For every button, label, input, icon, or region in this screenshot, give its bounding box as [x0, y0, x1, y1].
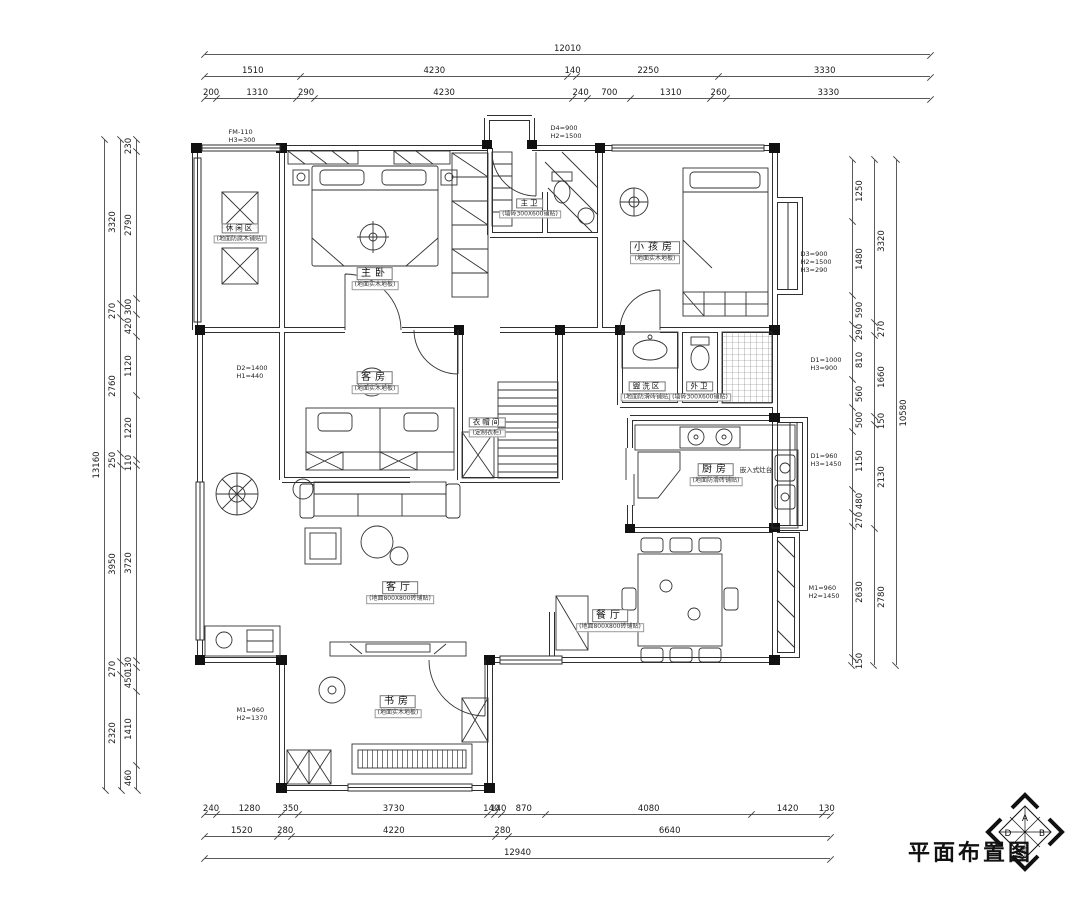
- dim-value: 3330: [814, 67, 836, 76]
- dim-segment: 1150: [852, 432, 867, 489]
- room-name: 盥洗区: [629, 381, 666, 391]
- dim-segment: 4220: [292, 822, 496, 837]
- dim-value: 3730: [383, 805, 405, 814]
- dim-value: 4220: [383, 827, 405, 836]
- room-label-kids: 小孩房 (地面实木地板): [630, 236, 680, 264]
- furniture-guest-room: [306, 330, 458, 470]
- dim-chain-bottom-mid: 152028042202806640: [205, 822, 830, 837]
- dim-value: 13160: [93, 451, 102, 478]
- dim-segment: 130: [823, 800, 830, 815]
- dim-value: 1310: [246, 89, 268, 98]
- room-label-cloak: 衣帽间 (定制衣柜): [469, 410, 506, 437]
- dim-value: 3720: [125, 553, 134, 575]
- dim-segment: 6640: [509, 822, 830, 837]
- dim-segment: 1220: [122, 396, 137, 460]
- dim-segment: 700: [588, 84, 631, 99]
- dim-value: 300: [125, 299, 134, 315]
- dim-value: 2760: [109, 375, 118, 397]
- room-label-leisure: 休闲区 (地面防腐木铺贴): [214, 216, 267, 243]
- room-name: 小孩房: [630, 241, 680, 254]
- dim-segment: 1410: [122, 692, 137, 766]
- dim-chain-right-total: 10580: [896, 160, 911, 665]
- room-name: 餐厅: [592, 609, 628, 622]
- dim-value: 3950: [109, 553, 118, 575]
- room-note: (地面800X800砖铺贴): [366, 595, 434, 604]
- dim-segment: 350: [282, 800, 300, 815]
- dim-value: 2320: [109, 722, 118, 744]
- dim-segment: 2790: [122, 152, 137, 299]
- room-name: 书房: [380, 695, 416, 708]
- dim-segment: 1120: [122, 337, 137, 396]
- dim-value: 12010: [554, 45, 581, 54]
- marker-letter-a: A: [1022, 814, 1029, 824]
- dim-value: 2630: [856, 581, 865, 603]
- dim-value: 480: [856, 493, 865, 509]
- dim-segment: 1250: [852, 160, 867, 222]
- dim-segment: 560: [852, 380, 867, 408]
- dim-segment: 150: [874, 417, 889, 424]
- dim-chain-top-mid: 1510423014022503330: [205, 62, 930, 77]
- room-note: (地面防腐木铺贴): [214, 235, 267, 244]
- room-note: (地面实木地板): [352, 281, 399, 290]
- dim-value: 1510: [242, 67, 264, 76]
- spec-guest-window: D2=1400 H1=440: [236, 364, 267, 380]
- dim-segment: 1420: [752, 800, 824, 815]
- dim-value: 280: [277, 827, 293, 836]
- dim-segment: 1280: [217, 800, 282, 815]
- dim-value: 280: [494, 827, 510, 836]
- spec-dining-door: M1=960 H2=1450: [808, 584, 839, 600]
- dim-value: 12940: [504, 849, 531, 858]
- dim-value: 1480: [856, 248, 865, 270]
- room-label-wash: 盥洗区 (地面防滑砖铺贴): [621, 374, 674, 401]
- dim-segment: 270: [852, 513, 867, 526]
- room-note: (地面防滑砖铺贴): [690, 477, 743, 486]
- floorplan-canvas: A B C D: [0, 0, 1080, 918]
- dim-value: 420: [125, 318, 134, 334]
- dim-segment: 3320: [106, 140, 121, 304]
- room-note: (墙砖300X600铺贴): [499, 210, 561, 219]
- dim-value: 810: [856, 351, 865, 367]
- dim-segment: 1660: [874, 336, 889, 417]
- dim-chain-bottom-inner: 2401280350373014014087040801420130: [205, 800, 830, 815]
- dim-segment: 4080: [546, 800, 752, 815]
- room-note: (地面实木地板): [630, 255, 680, 264]
- dim-segment: 3730: [299, 800, 487, 815]
- dim-segment: 150: [852, 658, 867, 665]
- spec-entry-door: D4=900 H2=1500: [550, 124, 581, 140]
- dim-value: 270: [109, 303, 118, 319]
- dim-segment: 1510: [205, 62, 301, 77]
- dim-segment: 870: [502, 800, 546, 815]
- dim-segment: 3330: [727, 84, 930, 99]
- dim-segment: 4230: [315, 84, 573, 99]
- furniture-living-room: [205, 473, 466, 656]
- dim-segment: 1520: [205, 822, 278, 837]
- dim-chain-top-inner: 2001310290423024070013102603330: [205, 84, 930, 99]
- dim-segment: 3320: [874, 160, 889, 323]
- dim-value: 1280: [239, 805, 261, 814]
- room-label-kitchen: 厨房 (地面防滑砖铺贴): [690, 458, 743, 486]
- dim-segment: 280: [278, 822, 292, 837]
- room-label-master-bath: 主卫 (墙砖300X600铺贴): [499, 191, 561, 218]
- dim-chain-right-mid: 3320270166015021302780: [874, 160, 889, 665]
- dim-segment: 10580: [896, 160, 911, 665]
- dim-value: 4230: [424, 67, 446, 76]
- room-label-guest: 客房 (地面实木地板): [352, 366, 399, 394]
- dim-segment: 12010: [205, 40, 930, 55]
- dim-value: 870: [516, 805, 532, 814]
- dim-segment: 4230: [301, 62, 569, 77]
- room-name: 主卧: [357, 267, 393, 280]
- room-note: (地面实木地板): [375, 709, 422, 718]
- floorplan-sheet: { "sheet": { "title": "平面布置图" }, "compas…: [0, 0, 1080, 918]
- dim-chain-left-inner: 2302790300420112012201103720130450141046…: [122, 140, 137, 790]
- spec-stove-note: 嵌入式灶台: [740, 466, 773, 474]
- dim-value: 2130: [878, 466, 887, 488]
- dim-chain-bottom-total: 12940: [205, 844, 830, 859]
- dim-value: 260: [711, 89, 727, 98]
- dim-segment: 2630: [852, 527, 867, 658]
- dim-value: 3330: [817, 89, 839, 98]
- spec-wash-window: D1=1000 H3=900: [810, 356, 841, 372]
- dim-value: 3320: [109, 211, 118, 233]
- dim-segment: 2320: [106, 675, 121, 790]
- dim-chain-left-mid: 3320270276025039502702320: [106, 140, 121, 790]
- dim-value: 1120: [125, 355, 134, 377]
- room-note: (墙砖300X600铺贴): [669, 393, 731, 402]
- room-name: 休闲区: [222, 223, 259, 233]
- room-note: (地面防滑砖铺贴): [621, 393, 674, 402]
- dim-value: 500: [856, 412, 865, 428]
- dim-value: 1220: [125, 417, 134, 439]
- dim-segment: 2250: [577, 62, 719, 77]
- dim-value: 10580: [900, 399, 909, 426]
- spec-study-door: M1=960 H2=1370: [236, 706, 267, 722]
- dim-value: 1150: [856, 450, 865, 472]
- furniture-study: [287, 660, 488, 784]
- dim-value: 1410: [125, 718, 134, 740]
- dim-segment: 1310: [631, 84, 711, 99]
- dim-value: 2790: [125, 215, 134, 237]
- room-note: (定制衣柜): [469, 429, 506, 438]
- dim-value: 150: [856, 653, 865, 669]
- marker-letter-b: B: [1039, 829, 1045, 839]
- dim-value: 450: [125, 672, 134, 688]
- dim-value: 590: [856, 302, 865, 318]
- dim-value: 1520: [231, 827, 253, 836]
- dim-value: 1420: [777, 805, 799, 814]
- room-note: (地面800X800砖铺贴): [576, 623, 644, 632]
- furniture-dining-room: [556, 538, 738, 662]
- room-name: 客厅: [382, 581, 418, 594]
- dim-value: 240: [573, 89, 589, 98]
- dim-value: 700: [601, 89, 617, 98]
- dim-segment: 240: [205, 800, 217, 815]
- dim-value: 6640: [659, 827, 681, 836]
- room-label-study: 书房 (地面实木地板): [375, 690, 422, 718]
- dim-value: 1310: [660, 89, 682, 98]
- dim-value: 270: [856, 512, 865, 528]
- dim-segment: 460: [122, 766, 137, 790]
- dim-value: 4080: [638, 805, 660, 814]
- dim-segment: 500: [852, 408, 867, 433]
- dim-value: 290: [856, 324, 865, 340]
- furniture-master-bedroom: [288, 151, 488, 330]
- room-name: 外卫: [686, 381, 713, 391]
- dim-segment: 12940: [205, 844, 830, 859]
- dim-segment: 1310: [217, 84, 297, 99]
- dim-value: 1660: [878, 366, 887, 388]
- sheet-title: 平面布置图: [908, 835, 1033, 867]
- dim-chain-left-total: 13160: [90, 140, 105, 790]
- room-note: (地面实木地板): [352, 385, 399, 394]
- dim-segment: 290: [852, 325, 867, 339]
- dim-value: 460: [125, 770, 134, 786]
- room-name: 客房: [357, 371, 393, 384]
- dim-segment: 810: [852, 339, 867, 379]
- dim-segment: 2760: [106, 318, 121, 455]
- dim-value: 1250: [856, 180, 865, 202]
- room-label-dining: 餐厅 (地面800X800砖铺贴): [576, 604, 644, 632]
- dim-segment: 2780: [874, 529, 889, 665]
- dim-segment: 240: [573, 84, 588, 99]
- dim-segment: 1480: [852, 222, 867, 296]
- dim-segment: 260: [711, 84, 727, 99]
- room-label-out-bath: 外卫 (墙砖300X600铺贴): [669, 374, 731, 401]
- dim-segment: 3330: [719, 62, 930, 77]
- dim-value: 4230: [433, 89, 455, 98]
- room-name: 厨房: [698, 463, 734, 476]
- spec-kids-bay: D3=900 H2=1500 H3=290: [800, 250, 831, 274]
- dim-segment: 480: [852, 490, 867, 514]
- dim-value: 290: [298, 89, 314, 98]
- dim-segment: 2130: [874, 425, 889, 529]
- dim-chain-top-total: 12010: [205, 40, 930, 55]
- room-label-master: 主卧 (地面实木地板): [352, 262, 399, 290]
- dim-segment: 3950: [106, 466, 121, 661]
- dim-segment: 200: [205, 84, 217, 99]
- dim-chain-right-inner: 1250148059029081056050011504802702630150: [852, 160, 867, 665]
- room-name: 衣帽间: [469, 417, 506, 427]
- dim-segment: 280: [496, 822, 510, 837]
- dim-value: 130: [819, 805, 835, 814]
- dim-segment: 13160: [90, 140, 105, 790]
- dim-value: 270: [109, 660, 118, 676]
- spec-top-left: FM-110 H3=300: [229, 128, 256, 144]
- dim-value: 2780: [878, 586, 887, 608]
- dim-segment: 3720: [122, 466, 137, 662]
- dim-segment: 590: [852, 296, 867, 325]
- dim-value: 3320: [878, 230, 887, 252]
- dim-value: 350: [282, 805, 298, 814]
- room-name: 主卫: [516, 198, 543, 208]
- dim-value: 560: [856, 385, 865, 401]
- dim-value: 2250: [637, 67, 659, 76]
- spec-kitchen-window: D1=960 H3=1450: [810, 452, 841, 468]
- room-label-living: 客厅 (地面800X800砖铺贴): [366, 576, 434, 604]
- dim-segment: 270: [874, 323, 889, 336]
- dim-segment: 290: [297, 84, 315, 99]
